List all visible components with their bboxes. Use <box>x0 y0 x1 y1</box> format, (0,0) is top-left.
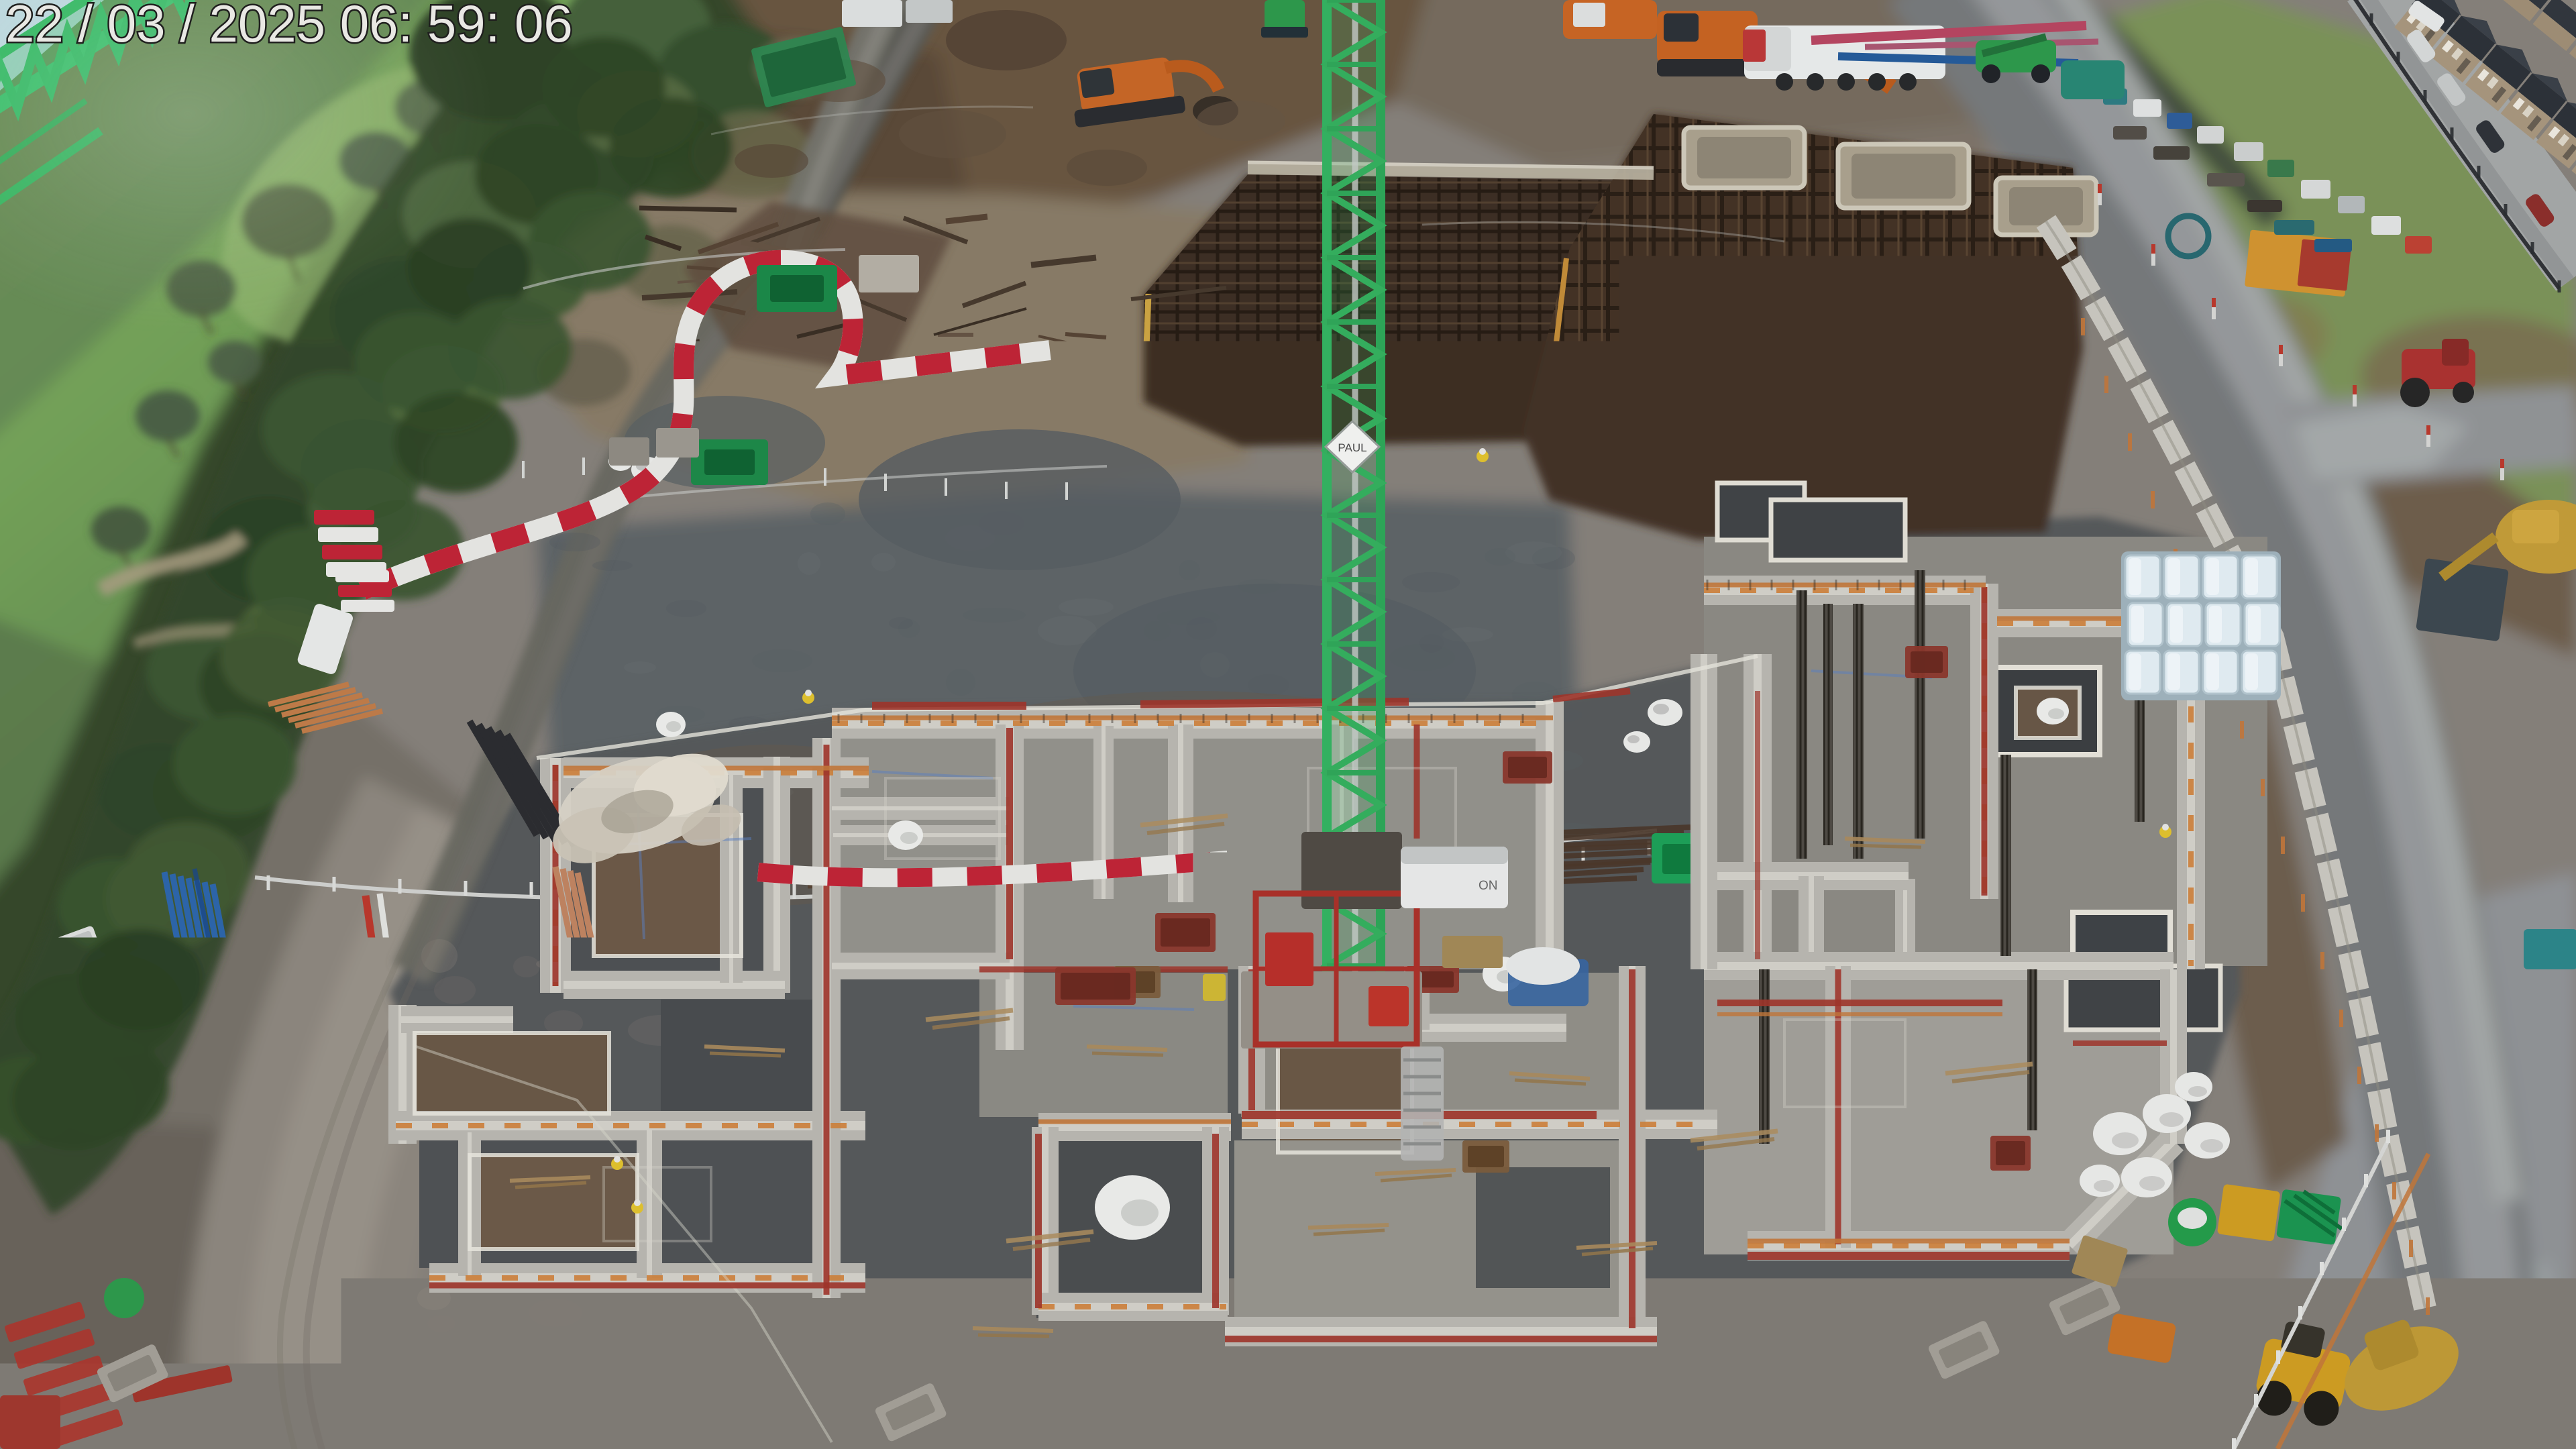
svg-text:22 / 03 / 2025 06: 59: 06: 22 / 03 / 2025 06: 59: 06 <box>5 0 573 53</box>
svg-text:PAUL: PAUL <box>1338 441 1366 454</box>
svg-text:ON: ON <box>1479 879 1498 893</box>
